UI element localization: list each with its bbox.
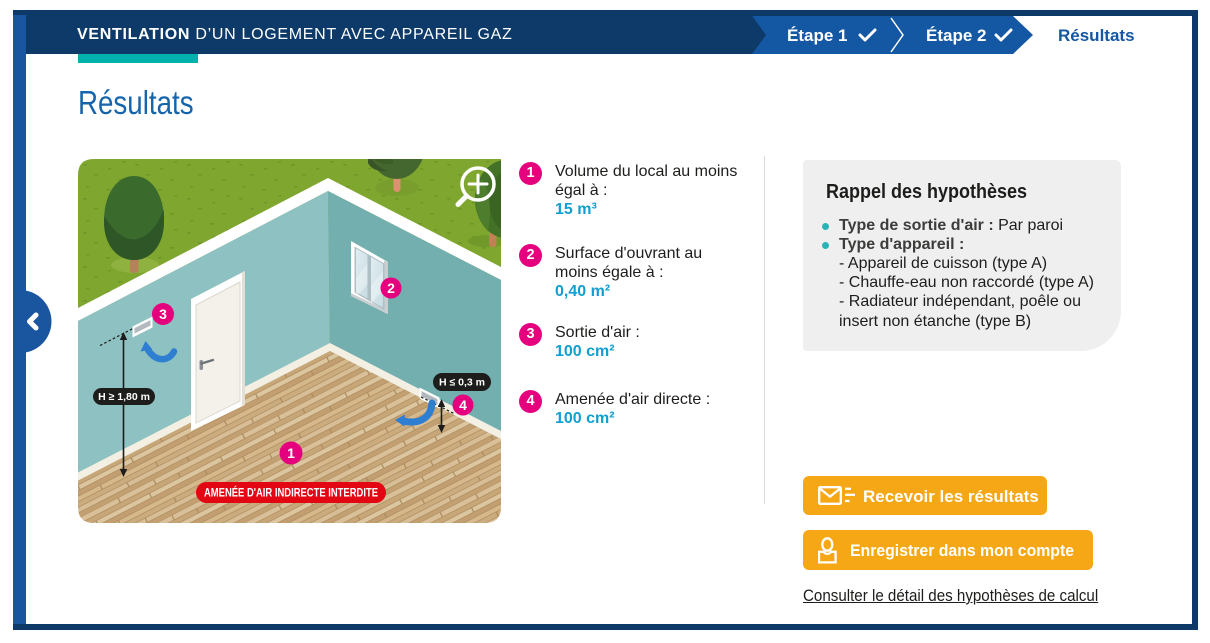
svg-text:4: 4 [459, 397, 467, 413]
svg-text:H ≥ 1,80 m: H ≥ 1,80 m [98, 391, 150, 403]
svg-text:3: 3 [159, 306, 167, 322]
svg-text:1: 1 [287, 445, 295, 461]
svg-text:AMENÉE D'AIR INDIRECTE INTERDI: AMENÉE D'AIR INDIRECTE INTERDITE [204, 485, 378, 500]
svg-text:2: 2 [387, 280, 395, 296]
svg-text:H ≤ 0,3 m: H ≤ 0,3 m [439, 377, 485, 389]
